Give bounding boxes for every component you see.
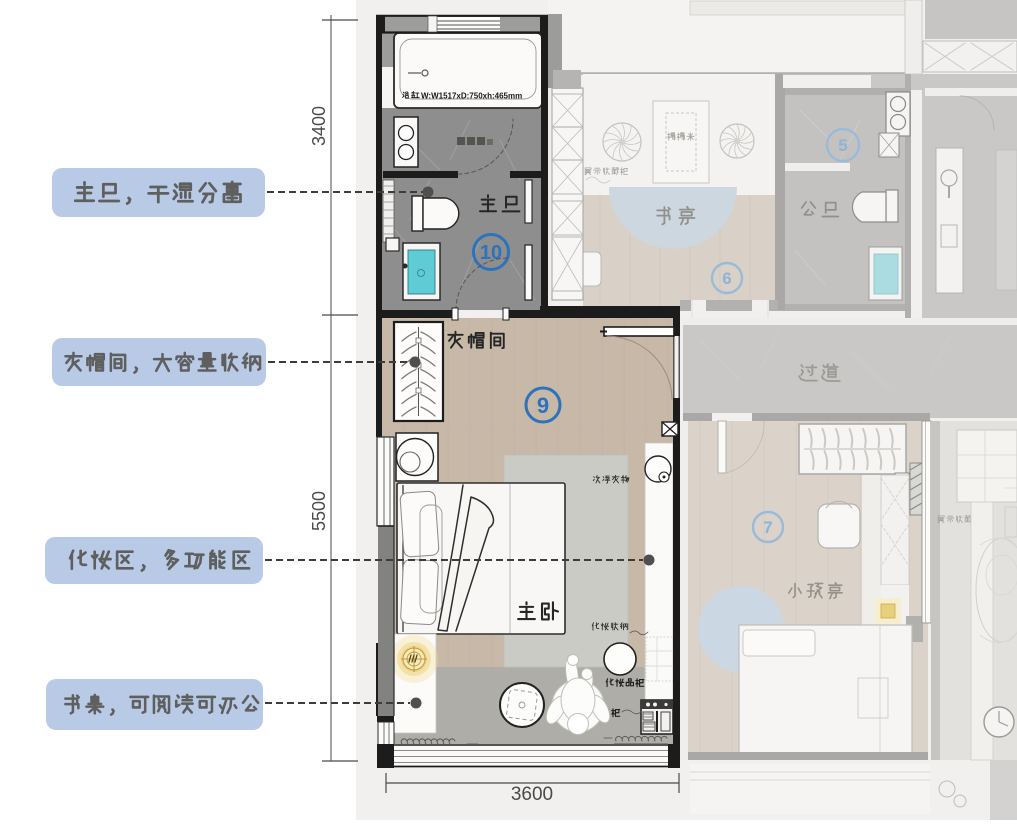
svg-text:W:W1517xD:750xh:465mm: W:W1517xD:750xh:465mm [421, 92, 522, 101]
svg-text:9: 9 [537, 393, 549, 418]
svg-text:3600: 3600 [511, 784, 553, 805]
svg-text:5500: 5500 [309, 491, 329, 531]
svg-text:6: 6 [722, 269, 731, 288]
svg-text:5: 5 [838, 136, 847, 155]
svg-text:7: 7 [763, 518, 772, 537]
svg-text:3400: 3400 [309, 106, 329, 146]
